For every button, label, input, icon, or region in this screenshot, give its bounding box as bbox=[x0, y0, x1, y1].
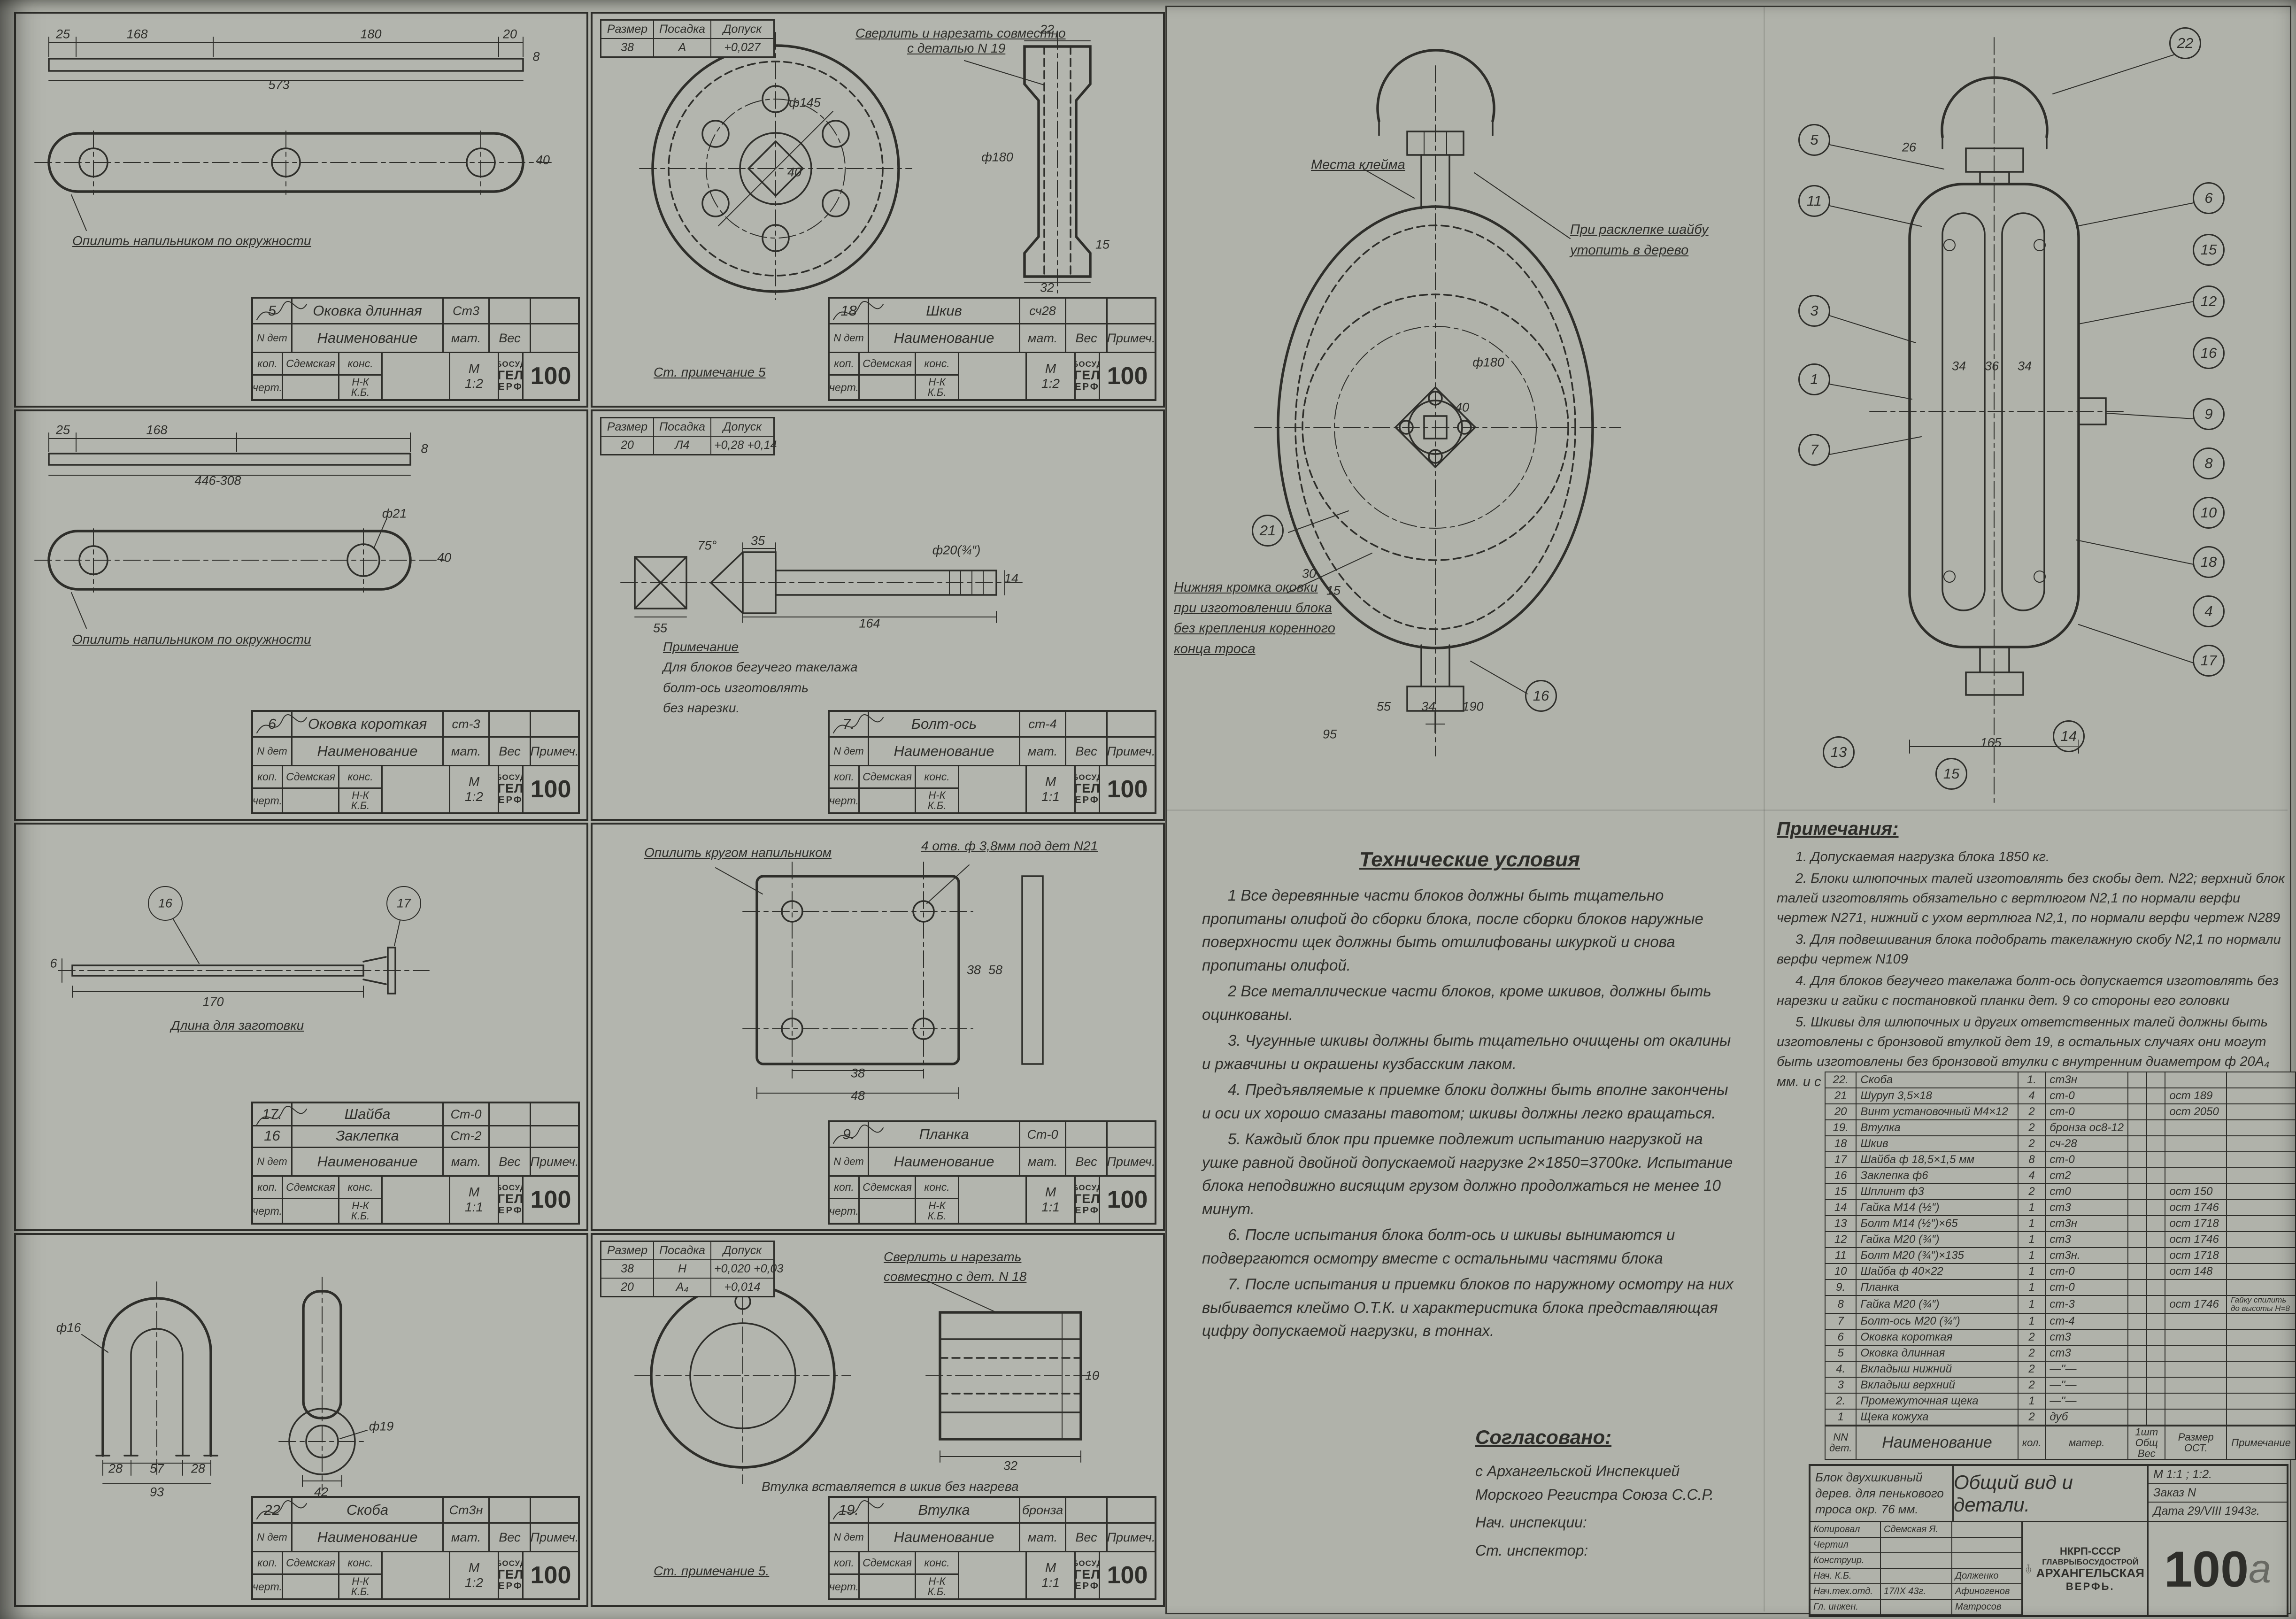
project-title: Блок двухшкивныйдерев. для пеньковоготро… bbox=[1811, 1466, 1954, 1521]
note-item: 3. Для подвешивания блока подобрать таке… bbox=[1777, 930, 2288, 969]
parts-table-row: 5Оковка длинная2ст3 bbox=[1825, 1345, 2296, 1361]
signature-cell bbox=[959, 353, 1027, 399]
fit-table: РазмерПосадкаДопуск 38Н+0,020 +0,03 20А₄… bbox=[600, 1241, 775, 1297]
dimension-label: ф145 bbox=[789, 96, 821, 110]
dimension-label: 25 bbox=[56, 423, 70, 438]
dimension-label: ф20(¾″) bbox=[932, 543, 981, 558]
stamp-area bbox=[1066, 1122, 1108, 1148]
dimension-label: 40 bbox=[437, 551, 451, 565]
dimension-label: 55 bbox=[653, 621, 667, 636]
dimension-label: ф16 bbox=[56, 1321, 81, 1335]
dimension-label: ф21 bbox=[382, 507, 407, 521]
dimension-label: 48 bbox=[851, 1089, 865, 1103]
parts-table-row: 16Заклепка ф64ст2 bbox=[1825, 1168, 2296, 1184]
note-item: 1. Допускаемая нагрузка блока 1850 кг. bbox=[1777, 847, 2288, 867]
dimension-label: 57 bbox=[150, 1462, 164, 1476]
dimension-label: 8 bbox=[532, 50, 539, 64]
dimension-label: 10 bbox=[1085, 1369, 1099, 1383]
fit-table: РазмерПосадкаДопуск 20Л4+0,28 +0,14 bbox=[600, 417, 775, 455]
approval-line: с Архангельской Инспекцией bbox=[1475, 1460, 1766, 1483]
signature-cell bbox=[959, 766, 1027, 812]
panel-title-block: 17.ШайбаСт-0 16ЗаклепкаСт-2 N детНаимено… bbox=[251, 1102, 580, 1225]
signature-cell bbox=[383, 1177, 450, 1223]
svg-text:А: А bbox=[2026, 1568, 2027, 1570]
blueprint-sheet: 2516818020573840 Опилить напильником по … bbox=[0, 0, 2296, 1619]
panel-planka: 38483858 Опилить кругом напильником 4 от… bbox=[591, 823, 1165, 1231]
parts-table-row: 1Щека кожуха2дуб bbox=[1825, 1409, 2296, 1426]
parts-table-row: 4.Вкладыш нижний2—''— bbox=[1825, 1361, 2296, 1377]
planka-drawing bbox=[593, 825, 1163, 1106]
panel-okovka-korotkaya: 25168446-3088ф2140 Опилить напильником п… bbox=[14, 409, 588, 821]
okovka-dlinnaya-drawing bbox=[16, 14, 586, 300]
approval-line: Ст. инспектор: bbox=[1475, 1539, 1766, 1563]
dimension-label: 20 bbox=[503, 27, 517, 42]
parts-table-row: 22.Скоба1.ст3н bbox=[1825, 1072, 2296, 1088]
parts-table-row: 17Шайба ф 18,5×1,5 мм8ст-0 bbox=[1825, 1152, 2296, 1168]
dimension-label: 40 bbox=[787, 165, 801, 180]
stamp-area bbox=[1066, 1498, 1108, 1524]
panel-title-block: 5Оковка длиннаяСт3 N детНаименованиемат.… bbox=[251, 297, 580, 401]
dimension-label: 180 bbox=[360, 27, 381, 42]
dimension-label: 40 bbox=[536, 153, 550, 168]
okovka-korotkaya-drawing bbox=[16, 411, 586, 712]
signature-cell bbox=[383, 353, 450, 399]
approval-line: Нач. инспекции: bbox=[1475, 1511, 1766, 1534]
drill-note: Сверлить и нарезать совместнос деталью N… bbox=[855, 26, 1066, 56]
technical-conditions: Технические условия 1 Все деревянные час… bbox=[1202, 844, 1737, 1345]
signature-cell bbox=[959, 1552, 1027, 1598]
parts-table-row: 3Вкладыш верхний2—''— bbox=[1825, 1377, 2296, 1393]
signature-cell bbox=[959, 1177, 1027, 1223]
parts-table-row: 10Шайба ф 40×221ст-0 ост 148 bbox=[1825, 1264, 2296, 1280]
dimension-label: 573 bbox=[268, 78, 289, 93]
parts-table-row: 7Болт-ось М20 (¾″)1ст-4 bbox=[1825, 1313, 2296, 1329]
svg-text:С: С bbox=[2028, 1568, 2029, 1570]
parts-table-row: 2.Промежуточная щека1—''— bbox=[1825, 1393, 2296, 1409]
stamp-area bbox=[490, 1498, 531, 1524]
tech-condition-item: 6. После испытания блока болт-ось и шкив… bbox=[1202, 1223, 1737, 1270]
parts-table-row: 9.Планка1ст-0 bbox=[1825, 1280, 2296, 1295]
fit-note: Втулка вставляется в шкив без нагрева bbox=[762, 1479, 1019, 1494]
parts-table-row: 19.Втулка2бронза ос8-12 bbox=[1825, 1120, 2296, 1136]
approval-line: Морского Регистра Союза С.С.Р. bbox=[1475, 1483, 1766, 1507]
machining-note: Опилить напильником по окружности bbox=[72, 233, 311, 248]
signature-cell bbox=[383, 1552, 450, 1598]
notes-title: Примечания: bbox=[1777, 815, 2288, 842]
blank-length-note: Длина для заготовки bbox=[171, 1018, 304, 1033]
dimension-label: 446-308 bbox=[194, 474, 241, 488]
anchor-icon: А С В bbox=[2026, 1534, 2032, 1604]
tech-condition-item: 7. После испытания и приемки блоков по н… bbox=[1202, 1272, 1737, 1342]
panel-shkiv: РазмерПосадкаДопуск 38А+0,027 ф145402232… bbox=[591, 12, 1165, 408]
order-number: Заказ N bbox=[2149, 1484, 2287, 1503]
dimension-label: 38 bbox=[851, 1066, 865, 1081]
tech-condition-item: 1 Все деревянные части блоков должны быт… bbox=[1202, 884, 1737, 977]
dimension-label: 32 bbox=[1040, 281, 1054, 295]
parts-table-header: NN дет. Наименование кол. матер. 1шт Общ… bbox=[1825, 1426, 2296, 1459]
dimension-label: 28 bbox=[108, 1462, 123, 1476]
tech-conditions-title: Технические условия bbox=[1202, 844, 1737, 875]
approval-block: Согласовано: с Архангельской Инспекцией … bbox=[1475, 1422, 1766, 1562]
tech-condition-item: 3. Чугунные шкивы должны быть тщательно … bbox=[1202, 1029, 1737, 1075]
signature-cell bbox=[383, 766, 450, 812]
dimension-label: 25 bbox=[56, 27, 70, 42]
note-item: 2. Блоки шлюпочных талей изготовлять без… bbox=[1777, 869, 2288, 928]
parts-table-row: 18Шкив2сч-28 bbox=[1825, 1136, 2296, 1152]
panel-title-block: 6Оковка короткаяст-3 N детНаименованиема… bbox=[251, 710, 580, 814]
dimension-label: 6 bbox=[50, 956, 57, 971]
parts-table-row: 20Винт установочный М4×122ст-0 ост 2050 bbox=[1825, 1104, 2296, 1120]
panel-bolt-os: РазмерПосадкаДопуск 20Л4+0,28 +0,14 5535… bbox=[591, 409, 1165, 821]
panel-shayba-zaklepka: 61701617 Длина для заготовки 17.ШайбаСт-… bbox=[14, 823, 588, 1231]
fit-table: РазмерПосадкаДопуск 38А+0,027 bbox=[600, 19, 775, 58]
zaklepka-drawing bbox=[16, 825, 586, 1106]
stamp-area bbox=[490, 299, 531, 324]
dimension-label: 14 bbox=[1004, 571, 1018, 586]
holes-note: 4 отв. ф 3,8мм под дет N21 bbox=[921, 839, 1098, 854]
dimension-label: 15 bbox=[1095, 238, 1109, 252]
stamp-area bbox=[1066, 299, 1108, 324]
parts-table-row: 13Болт М14 (½″)×651ст3н ост 1718 bbox=[1825, 1216, 2296, 1232]
machining-note: Опилить кругом напильником bbox=[644, 845, 832, 860]
dimension-label: 38 bbox=[967, 963, 981, 978]
parts-table-row: 21Шуруп 3,5×184ст-0 ост 189 bbox=[1825, 1088, 2296, 1104]
dimension-label: 8 bbox=[421, 442, 428, 456]
dimension-label: 75° bbox=[698, 539, 717, 553]
sheet-meta: М 1:1 ; 1:2. Заказ N Дата 29/VIII 1943г. bbox=[2149, 1466, 2287, 1521]
drill-note: Сверлить и нарезатьсовместно с дет. N 18 bbox=[884, 1247, 1026, 1287]
see-note: Ст. примечание 5. bbox=[654, 1564, 769, 1579]
panel-skoba: ф162857289342ф19 22СкобаСт3н N детНаимен… bbox=[14, 1233, 588, 1607]
panel-note: Примечание Для блоков бегучего такелажа … bbox=[663, 637, 858, 718]
notes-block: Примечания: 1. Допускаемая нагрузка блок… bbox=[1777, 815, 2288, 1094]
dimension-label: 93 bbox=[150, 1485, 164, 1500]
panel-title-block: 22СкобаСт3н N детНаименованиемат.ВесПрим… bbox=[251, 1496, 580, 1600]
panel-title-block: 19.Втулкабронза N детНаименованиемат.Вес… bbox=[828, 1496, 1156, 1600]
dimension-label: 35 bbox=[751, 534, 765, 548]
stamp-area bbox=[490, 1103, 531, 1126]
date-value: Дата 29/VIII 1943г. bbox=[2149, 1503, 2287, 1520]
tech-condition-item: 5. Каждый блок при приемке подлежит испы… bbox=[1202, 1127, 1737, 1220]
dimension-label: 168 bbox=[146, 423, 167, 438]
dimension-label: 170 bbox=[202, 995, 223, 1010]
parts-table-row: 15Шплинт ф32ст0 ост 150 bbox=[1825, 1184, 2296, 1200]
dimension-label: 28 bbox=[191, 1462, 205, 1476]
dimension-label: ф180 bbox=[981, 150, 1013, 165]
stamp-area bbox=[490, 712, 531, 738]
machining-note: Опилить напильником по окружности bbox=[72, 632, 311, 647]
stamp-area bbox=[1066, 712, 1108, 738]
dimension-label: ф19 bbox=[369, 1419, 394, 1434]
panel-vtulka: РазмерПосадкаДопуск 38Н+0,020 +0,03 20А₄… bbox=[591, 1233, 1165, 1607]
tech-condition-item: 2 Все металлические части блоков, кроме … bbox=[1202, 979, 1737, 1026]
assembly-drawing bbox=[1170, 14, 2288, 812]
drawing-number: 100а bbox=[2149, 1522, 2287, 1615]
dimension-label: 168 bbox=[126, 27, 147, 42]
main-title-block: Блок двухшкивныйдерев. для пеньковоготро… bbox=[1809, 1464, 2288, 1617]
panel-title-block: 7.Болт-осьст-4 N детНаименованиемат.ВесП… bbox=[828, 710, 1156, 814]
signature-table: КопировалСдемская Я.ЧертилКонструир.Нач.… bbox=[1811, 1522, 2023, 1615]
svg-text:В: В bbox=[2030, 1568, 2031, 1570]
parts-table-row: 8Гайка М20 (¾″)1ст-3 ост 1746Гайку спили… bbox=[1825, 1295, 2296, 1313]
dimension-label: 17 bbox=[397, 896, 411, 911]
parts-table-row: 11Болт М20 (¾″)×1351ст3н. ост 1718 bbox=[1825, 1248, 2296, 1264]
scale-value: М 1:1 ; 1:2. bbox=[2149, 1466, 2287, 1484]
dimension-label: 32 bbox=[1003, 1459, 1017, 1473]
panel-okovka-dlinnaya: 2516818020573840 Опилить напильником по … bbox=[14, 12, 588, 408]
skoba-drawing bbox=[16, 1235, 586, 1498]
panel-title-block: 18Шкивсч28 N детНаименованиемат.ВесПриме… bbox=[828, 297, 1156, 401]
see-note: Ст. примечание 5 bbox=[654, 365, 766, 380]
dimension-label: 58 bbox=[988, 963, 1002, 978]
panel-title-block: 9.ПланкаСт-0 N детНаименованиемат.ВесПри… bbox=[828, 1120, 1156, 1225]
tech-condition-item: 4. Предъявляемые к приемке блоки должны … bbox=[1202, 1078, 1737, 1125]
note-item: 4. Для блоков бегучего такелажа болт-ось… bbox=[1777, 971, 2288, 1010]
sheet-title: Общий вид и детали. bbox=[1954, 1466, 2149, 1521]
parts-list-table: 22.Скоба1.ст3н 21Шуруп 3,5×184ст-0 ост 1… bbox=[1825, 1072, 2296, 1460]
parts-table-row: 12Гайка М20 (¾″)1ст3 ост 1746 bbox=[1825, 1232, 2296, 1248]
approval-title: Согласовано: bbox=[1475, 1422, 1766, 1452]
shipyard-stamp: А С В НКРП-СССР ГЛАВРЫБОСУДОСТРОЙ АРХАНГ… bbox=[2023, 1522, 2149, 1615]
dimension-label: 16 bbox=[158, 896, 172, 911]
dimension-label: 164 bbox=[859, 617, 880, 631]
parts-table-row: 14Гайка М14 (½″)1ст3 ост 1746 bbox=[1825, 1200, 2296, 1216]
parts-table-row: 6Оковка короткая2ст3 bbox=[1825, 1329, 2296, 1345]
